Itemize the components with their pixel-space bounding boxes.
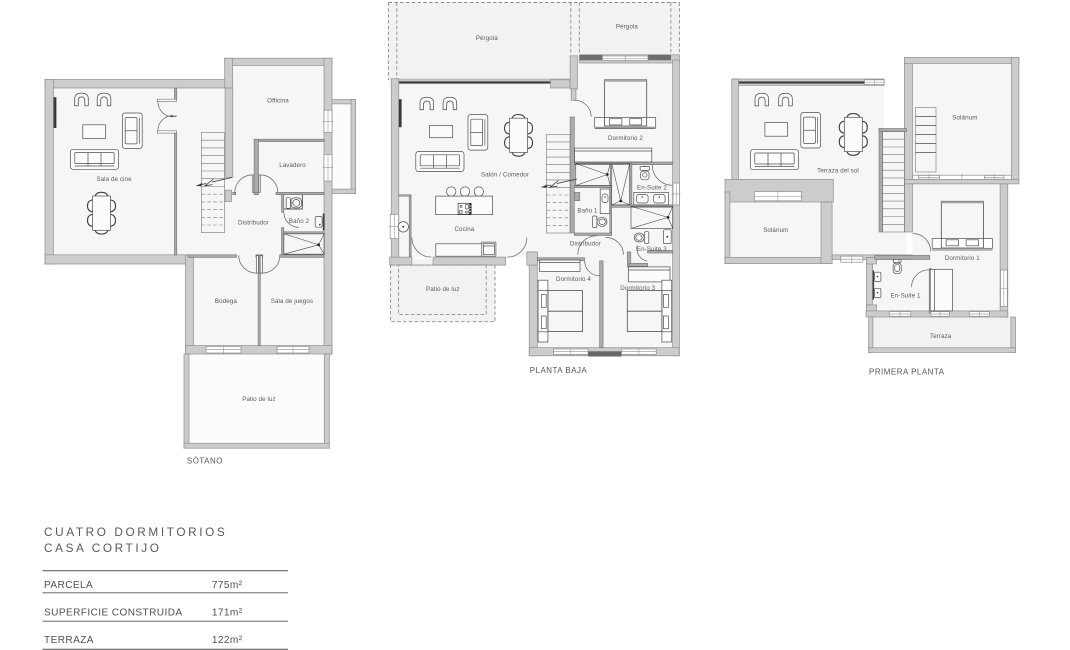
svg-text:Sala de cine: Sala de cine xyxy=(96,176,132,183)
svg-text:PRIMERA PLANTA: PRIMERA PLANTA xyxy=(869,367,945,376)
svg-text:Solárium: Solárium xyxy=(952,115,977,122)
svg-text:Pérgola: Pérgola xyxy=(476,35,498,42)
svg-text:Terraza del sol: Terraza del sol xyxy=(817,168,859,175)
svg-text:PLANTA BAJA: PLANTA BAJA xyxy=(530,366,588,375)
svg-text:SUPERFICIE CONSTRUIDA: SUPERFICIE CONSTRUIDA xyxy=(44,607,183,618)
svg-text:122m²: 122m² xyxy=(212,635,243,646)
svg-text:En-Suite 3: En-Suite 3 xyxy=(637,246,667,253)
svg-text:Dormitorio 2: Dormitorio 2 xyxy=(608,135,643,142)
svg-text:En-Suite 2: En-Suite 2 xyxy=(637,185,667,192)
svg-text:TERRAZA: TERRAZA xyxy=(44,635,94,646)
svg-text:Officina: Officina xyxy=(267,98,289,105)
svg-text:PARCELA: PARCELA xyxy=(44,580,93,591)
svg-text:Solárium: Solárium xyxy=(763,227,788,234)
svg-text:Lavadero: Lavadero xyxy=(279,162,306,169)
svg-text:Bodega: Bodega xyxy=(215,298,237,305)
svg-text:CASA CORTIJO: CASA CORTIJO xyxy=(44,541,162,555)
svg-text:Distribudor: Distribudor xyxy=(238,219,269,226)
svg-text:Cocina: Cocina xyxy=(454,226,474,233)
svg-text:Baño 1: Baño 1 xyxy=(577,207,598,214)
svg-text:Dormitorio 1: Dormitorio 1 xyxy=(945,255,980,262)
svg-text:Dormitorio 4: Dormitorio 4 xyxy=(556,276,591,283)
svg-text:Pérgola: Pérgola xyxy=(616,24,638,31)
svg-text:CUATRO DORMITORIOS: CUATRO DORMITORIOS xyxy=(44,525,227,539)
svg-text:En-Suite 1: En-Suite 1 xyxy=(891,292,921,299)
svg-text:775m²: 775m² xyxy=(212,580,243,591)
svg-text:Sala de juegos: Sala de juegos xyxy=(271,298,313,305)
svg-text:SÓTANO: SÓTANO xyxy=(187,457,223,466)
svg-text:Baño 2: Baño 2 xyxy=(289,218,310,225)
svg-text:Patio de luz: Patio de luz xyxy=(426,286,460,293)
svg-text:Salón / Comedor: Salón / Comedor xyxy=(481,171,529,178)
svg-text:Terraza: Terraza xyxy=(930,333,952,340)
svg-text:Patio de luz: Patio de luz xyxy=(242,396,276,403)
svg-text:Distribudor: Distribudor xyxy=(570,240,601,247)
svg-text:171m²: 171m² xyxy=(212,607,243,618)
